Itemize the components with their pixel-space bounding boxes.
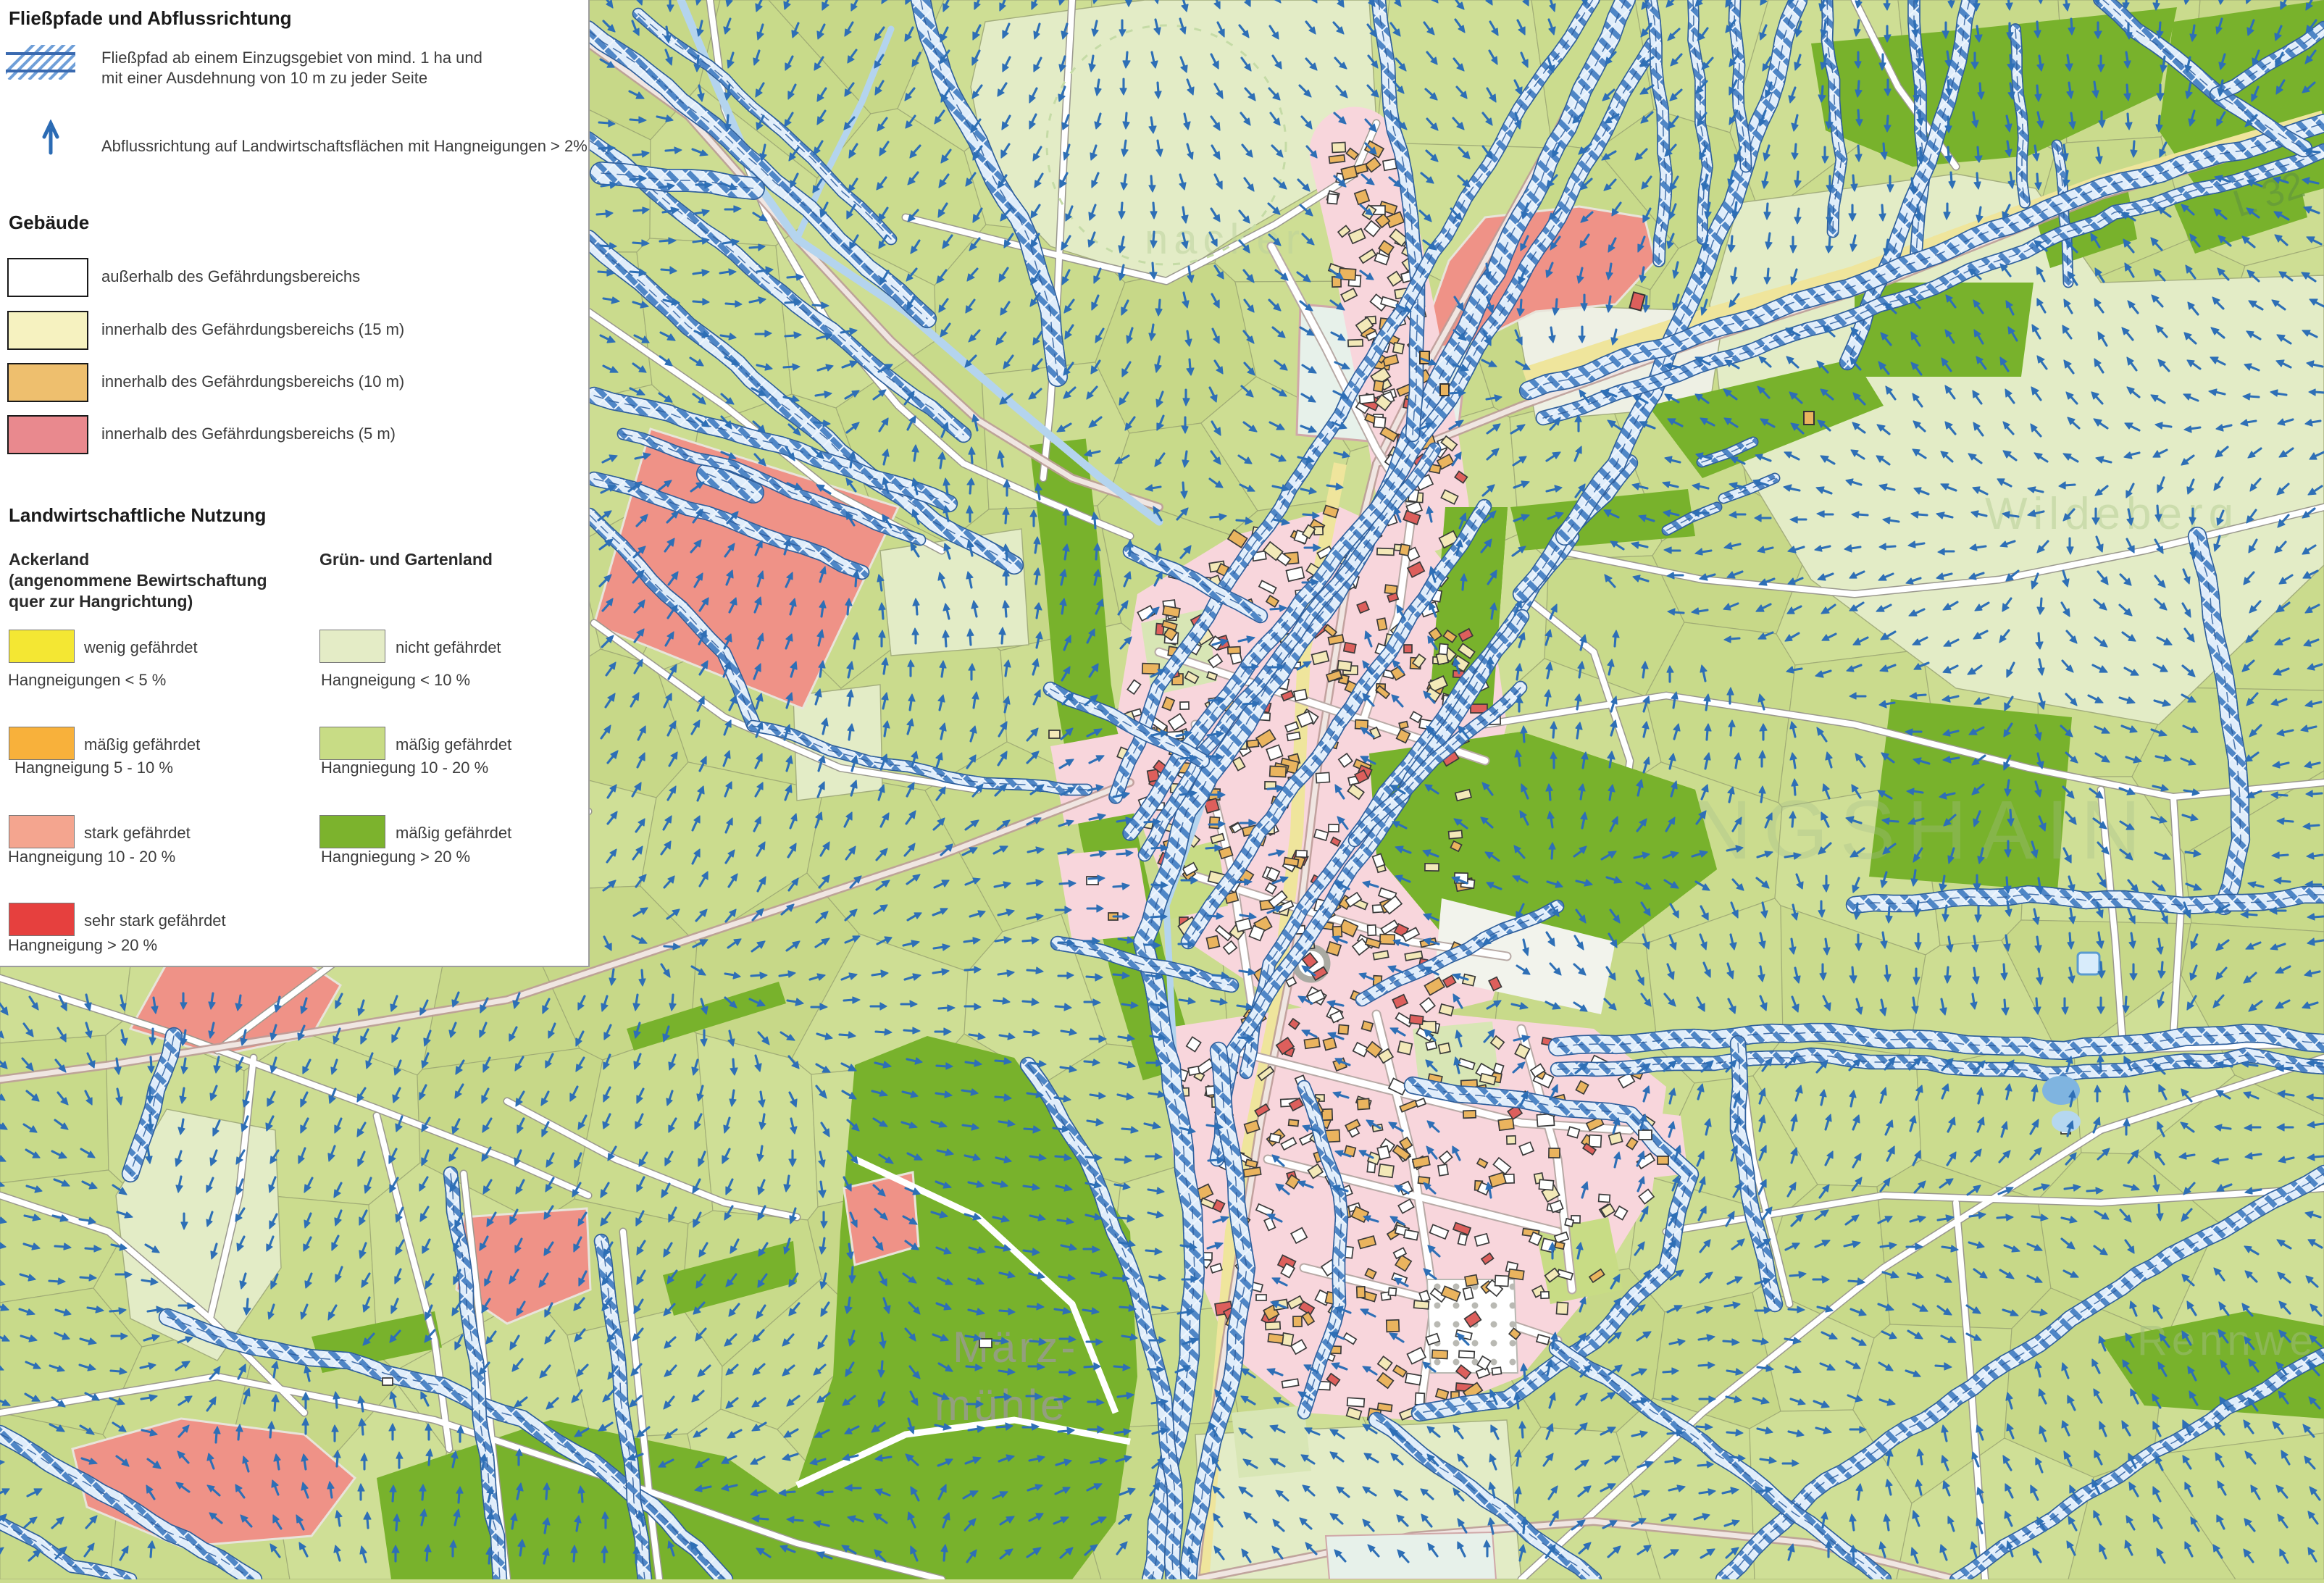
svg-text:März-: März- bbox=[953, 1323, 1078, 1371]
